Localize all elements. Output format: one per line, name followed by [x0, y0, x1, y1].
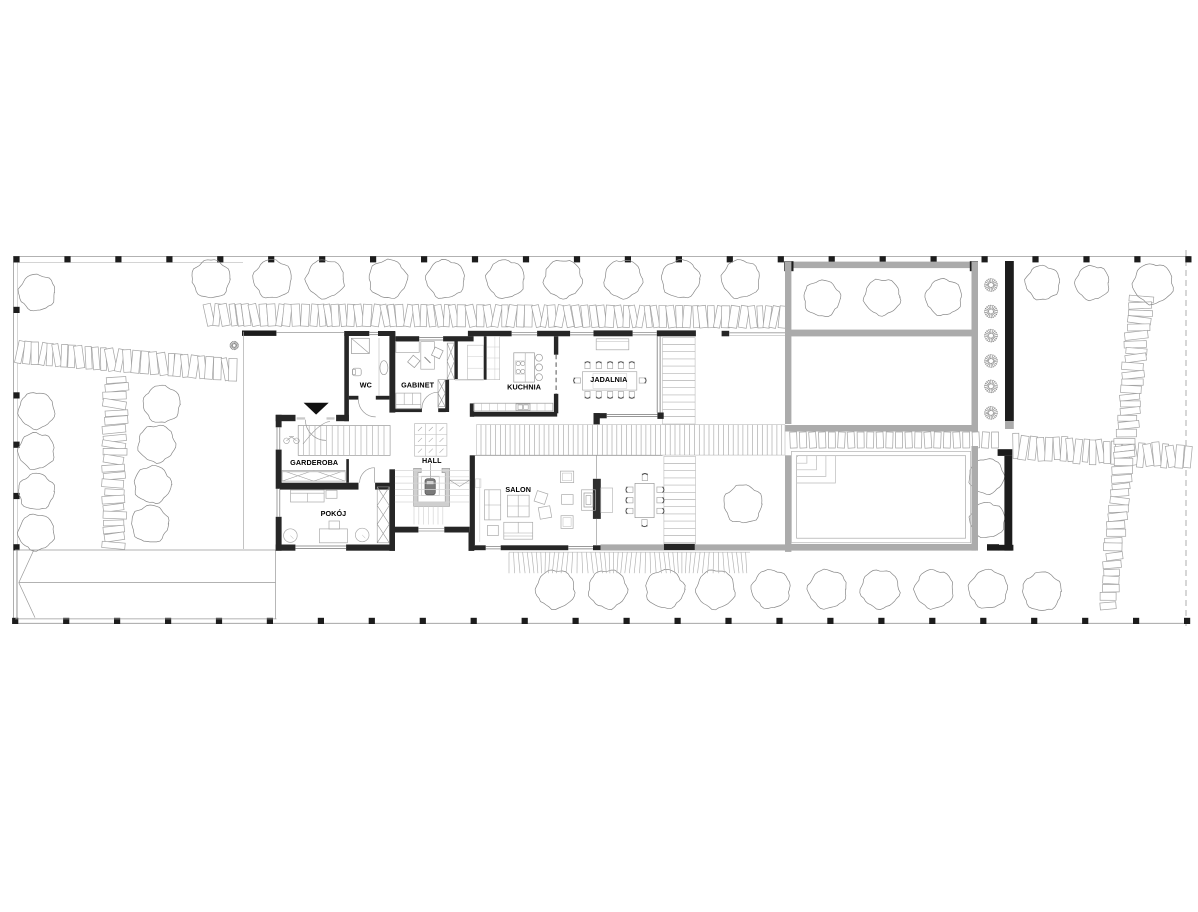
svg-text:HALL: HALL	[422, 456, 442, 465]
svg-text:KUCHNIA: KUCHNIA	[507, 382, 541, 391]
svg-text:SALON: SALON	[505, 485, 531, 494]
svg-text:POKÓJ: POKÓJ	[321, 509, 347, 518]
svg-text:JADALNIA: JADALNIA	[590, 375, 627, 384]
svg-text:WC: WC	[360, 380, 372, 389]
svg-text:GABINET: GABINET	[401, 381, 435, 390]
svg-text:GARDEROBA: GARDEROBA	[290, 458, 338, 467]
